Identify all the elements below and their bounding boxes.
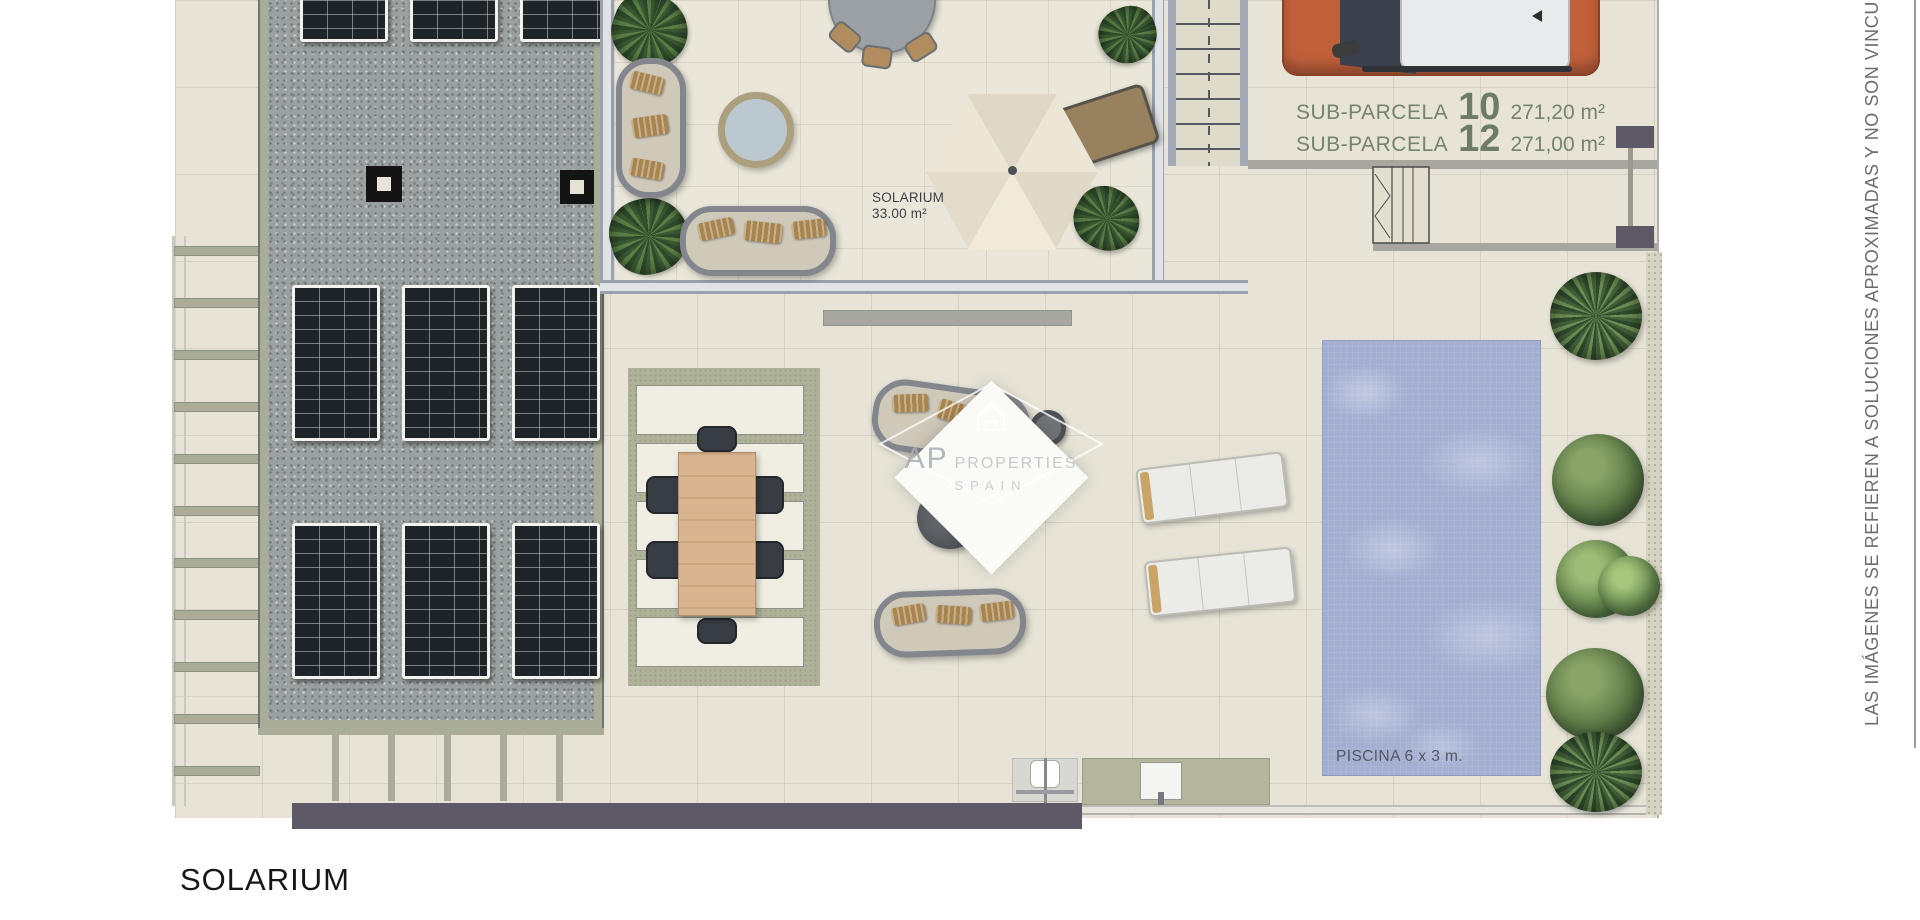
plan-title: SOLARIUM [180, 862, 350, 898]
round-coffee-table [718, 92, 794, 168]
path-edge [1248, 160, 1657, 169]
roof-border [260, 720, 602, 728]
patio-chair [861, 44, 894, 70]
watermark-name: PROPERTIES [955, 455, 1078, 472]
solar-panel-row [292, 285, 600, 441]
solar-panel-icon [292, 523, 380, 679]
solar-panel-row [292, 523, 600, 679]
low-wall [823, 310, 1072, 326]
sub-parcela-number: 12 [1458, 120, 1500, 158]
sub-parcela-label-12: SUB-PARCELA 12 271,00 m² [1296, 120, 1605, 158]
boundary-wall [292, 803, 1082, 829]
outdoor-sofa [680, 206, 836, 276]
palm-tree-icon [1550, 732, 1642, 812]
round-tree-icon [1546, 648, 1644, 740]
boundary-curb [1082, 805, 1657, 815]
sub-parcela-area: 271,00 m² [1510, 133, 1605, 157]
fence-post [174, 558, 260, 568]
pool: PISCINA 6 x 3 m. [1322, 340, 1541, 776]
watermark-house-icon [978, 404, 1004, 430]
fence-post [174, 714, 260, 724]
roof-vent-icon [560, 170, 594, 204]
round-tree-icon [1552, 434, 1644, 526]
fence-post [174, 246, 260, 256]
solar-panel-icon [300, 0, 388, 42]
solarium-zone-area: 33.00 m² [872, 206, 944, 222]
walkway-edge [258, 728, 604, 735]
solar-panel-icon [520, 0, 608, 42]
dining-chair [697, 426, 737, 452]
fence-post [174, 402, 260, 412]
solar-panel-icon [292, 285, 380, 441]
watermark: APPROPERTIES SPAIN [878, 382, 1104, 514]
solar-panel-icon [402, 523, 490, 679]
fence-post [174, 350, 260, 360]
walkway-divider [556, 735, 563, 801]
solar-panel-icon [512, 523, 600, 679]
dining-chair [697, 618, 737, 644]
round-tree-icon [1598, 556, 1660, 616]
parasol-pole [1008, 166, 1017, 175]
outdoor-sofa [616, 58, 686, 198]
car-icon [1282, 0, 1600, 76]
watermark-region: SPAIN [878, 478, 1104, 493]
palm-tree-icon [1550, 272, 1642, 360]
walkway-divider [388, 735, 395, 801]
fence-post [174, 506, 260, 516]
solar-panel-icon [402, 285, 490, 441]
path-edge [1373, 243, 1657, 251]
pool-label: PISCINA 6 x 3 m. [1336, 748, 1463, 766]
lower-stairs-icon [1372, 166, 1430, 244]
walkway-divider [500, 735, 507, 801]
margin-line [1914, 0, 1916, 748]
outdoor-sofa [873, 587, 1027, 658]
stone-strip [1646, 252, 1662, 815]
watermark-initials: AP [905, 442, 949, 475]
solarium-zone-name: SOLARIUM [872, 190, 944, 206]
fence-post [174, 610, 260, 620]
fence-post [174, 454, 260, 464]
outdoor-shower-icon [1158, 792, 1164, 806]
floor-plan-canvas: SOLARIUM 33.00 m² SUB-PARCELA 10 271,20 … [0, 0, 1920, 920]
deck-border-bottom [600, 280, 1248, 294]
walkway-divider [444, 735, 451, 801]
fence-post [174, 766, 260, 776]
disclaimer-text: LAS IMÁGENES SE REFIEREN A SOLUCIONES AP… [1862, 1, 1883, 726]
fence-post [174, 298, 260, 308]
shower-pole-icon [1044, 758, 1047, 808]
solar-panel-icon [512, 285, 600, 441]
wall-block [1616, 126, 1654, 148]
dining-table [678, 452, 756, 616]
wall-block [1616, 226, 1654, 248]
roof-vent-icon [366, 166, 402, 202]
solar-panel-icon [410, 0, 498, 42]
solar-panel-row [300, 0, 608, 42]
roof-border [260, 0, 268, 728]
fence-post [174, 662, 260, 672]
wall-line [1628, 148, 1633, 226]
solarium-zone-label: SOLARIUM 33.00 m² [872, 190, 944, 222]
shower-bar [1016, 790, 1074, 794]
sub-parcela-name: SUB-PARCELA [1296, 133, 1448, 157]
watermark-brand: APPROPERTIES [878, 442, 1104, 476]
walkway-divider [332, 735, 339, 801]
stairs-icon [1168, 0, 1248, 166]
